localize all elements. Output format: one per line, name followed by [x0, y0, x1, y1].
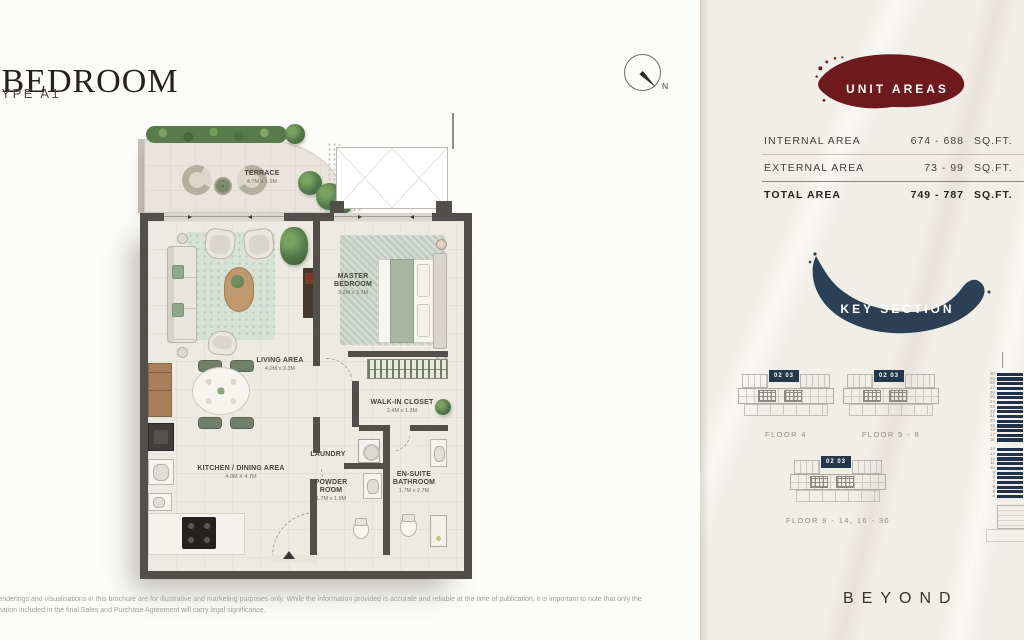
- area-row-internal: INTERNAL AREA 674 - 688 SQ.FT.: [762, 128, 1024, 155]
- wardrobe: [367, 359, 448, 379]
- plan-edge-line: [452, 113, 454, 149]
- key-diagram-label: FLOOR 9 - 14, 16 - 30: [772, 516, 904, 525]
- sofa: [167, 246, 197, 343]
- unit-outline: LIVING AREA 4.0M x 3.3M MASTER BEDROOM 3…: [140, 213, 472, 579]
- disclaimer: renderings and visualisations in this br…: [0, 594, 642, 616]
- cooktop: [182, 517, 216, 549]
- bed-headboard: [433, 253, 447, 349]
- room-label-laundry: LAUNDRY: [306, 451, 350, 459]
- beyond-logo: BEYOND: [843, 590, 959, 608]
- door-slide-arrow-icon: [410, 215, 414, 219]
- disclaimer-line: renderings and visualisations in this br…: [0, 594, 642, 605]
- disclaimer-line: mation included in the final Sales and P…: [0, 605, 642, 616]
- sofa-pillow: [172, 303, 184, 317]
- key-diagram-label: FLOOR 4: [738, 430, 834, 439]
- room-label-walkin-closet: WALK-IN CLOSET 2.4M x 1.3M: [360, 399, 444, 414]
- interior-wall: [359, 425, 383, 431]
- bed-duvet: [390, 259, 414, 343]
- key-diagram-floor-4: 02 03: [738, 366, 834, 424]
- coffee-table: [224, 267, 254, 312]
- window-strip: [164, 213, 284, 221]
- compass-north-icon: N: [624, 54, 661, 91]
- wall-chunk: [436, 201, 452, 214]
- kitchen-appliance: [148, 493, 172, 511]
- powder-toilet: [353, 521, 369, 539]
- key-section-brush-stroke: [800, 248, 995, 340]
- side-table: [177, 347, 188, 358]
- area-row-external: EXTERNAL AREA 73 - 99 SQ.FT.: [762, 155, 1024, 182]
- room-label-terrace: TERRACE 4.7M x 1.9M: [230, 170, 294, 185]
- tower-base: [986, 529, 1024, 542]
- door-arc: [326, 357, 352, 383]
- ensuite-sink: [430, 439, 447, 467]
- shower-tray: [430, 515, 447, 547]
- area-table: INTERNAL AREA 674 - 688 SQ.FT. EXTERNAL …: [762, 128, 1024, 208]
- key-diagram-floor-9-30: 02 03: [790, 452, 886, 510]
- window-strip: [334, 213, 432, 221]
- entrance-marker-icon: [283, 551, 295, 559]
- key-section-badge: KEY SECTION: [820, 302, 975, 316]
- page-subtitle: TYPE A1: [0, 86, 61, 101]
- interior-wall: [313, 221, 320, 366]
- bed-pillow: [417, 264, 430, 297]
- dining-chair: [198, 417, 222, 429]
- kitchen-cabinet: [148, 423, 174, 451]
- door-slide-arrow-icon: [358, 215, 362, 219]
- room-label-powder-room: POWDER ROOM 1.7M x 1.9M: [306, 479, 356, 502]
- room-label-master-bedroom: MASTER BEDROOM 3.2M x 3.3M: [324, 273, 382, 296]
- terrace-plant-icon: [285, 124, 305, 144]
- unit-areas-badge: UNIT AREAS: [830, 82, 965, 96]
- door-slide-arrow-icon: [188, 215, 192, 219]
- plant-icon: [280, 227, 308, 265]
- washing-machine: [358, 439, 380, 463]
- door-slide-arrow-icon: [248, 215, 252, 219]
- interior-wall: [410, 425, 448, 431]
- unit-position-badge: 02 03: [821, 456, 851, 468]
- area-row-total: TOTAL AREA 749 - 787 SQ.FT.: [762, 182, 1024, 208]
- info-panel: UNIT AREAS INTERNAL AREA 674 - 688 SQ.FT…: [700, 0, 1024, 640]
- key-diagram-floor-5-8: 02 03: [843, 366, 939, 424]
- floorplan-section: 1 BEDROOM TYPE A1 N TERRACE 4.7M x 1.9M: [0, 0, 700, 640]
- interior-wall: [348, 351, 448, 357]
- compass-needle: [639, 71, 657, 89]
- interior-wall: [313, 417, 320, 453]
- terrace-hedge: [146, 126, 287, 143]
- kitchen-sink: [148, 459, 174, 485]
- dining-table: [192, 367, 250, 415]
- key-diagram-label: FLOOR 5 - 8: [843, 430, 939, 439]
- side-table: [177, 233, 188, 244]
- dining-chair: [230, 417, 254, 429]
- bedside-lamp: [436, 239, 447, 250]
- unit-position-badge: 02 03: [874, 370, 904, 382]
- floor-plan: TERRACE 4.7M x 1.9M: [130, 113, 470, 573]
- ensuite-toilet: [400, 517, 417, 537]
- kitchen-counter-wood: [148, 363, 172, 417]
- tower-podium: [997, 505, 1024, 529]
- tower-antenna-line: [1002, 352, 1003, 368]
- powder-sink: [363, 473, 382, 499]
- adjacent-terrace-hatch: [336, 147, 448, 209]
- room-label-ensuite-bathroom: EN-SUITE BATHROOM 1.7M x 2.7M: [384, 471, 444, 494]
- tower-elevation-floors: 3029282726252423222120191817161413121110…: [982, 372, 1023, 499]
- door-arc: [390, 431, 410, 451]
- room-label-living: LIVING AREA 4.0M x 3.3M: [244, 357, 316, 372]
- brochure-page: 1 BEDROOM TYPE A1 N TERRACE 4.7M x 1.9M: [0, 0, 1024, 640]
- sofa-pillow: [172, 265, 184, 279]
- unit-position-badge: 02 03: [769, 370, 799, 382]
- door-arc: [271, 511, 315, 555]
- interior-wall: [344, 463, 383, 469]
- compass-n-label: N: [662, 81, 668, 91]
- room-label-kitchen-dining: KITCHEN / DINING AREA 4.0M X 4.7M: [188, 465, 294, 480]
- interior-wall: [352, 381, 359, 427]
- bed-pillow: [417, 304, 430, 337]
